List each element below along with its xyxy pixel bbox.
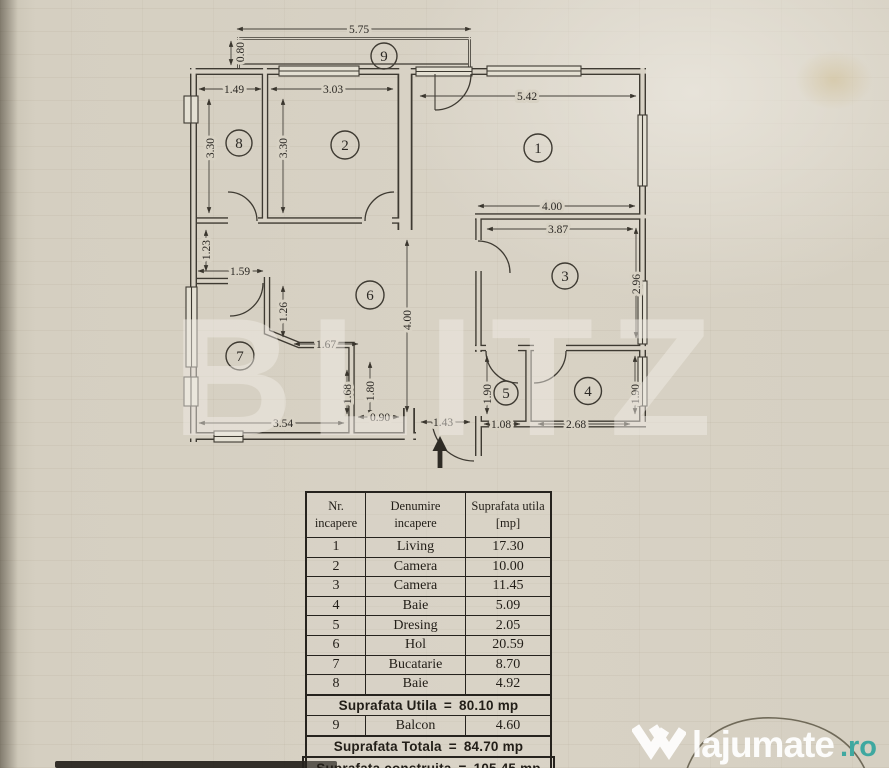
room-number: 6 [366, 288, 374, 304]
dim-label: 1.90 [482, 384, 494, 404]
cell-area: 11.45 [466, 577, 550, 596]
header-suprafata: Suprafata utila [mp] [466, 493, 550, 537]
walls-dark [190, 37, 646, 456]
dim-label: 3.03 [323, 84, 343, 96]
cell-name: Camera [366, 577, 466, 596]
cell-nr: 4 [307, 597, 366, 616]
scanned-floorplan-photo: 5.75 0.80 1.49 3.03 5.42 3.30 3.30 4.00 … [0, 0, 889, 768]
dim-label: 0.80 [235, 42, 247, 62]
cell-area: 5.09 [466, 597, 550, 616]
summary-value: 84.70 mp [464, 739, 523, 754]
dim-label: 3.30 [205, 138, 217, 158]
dim-label: 5.75 [349, 24, 369, 36]
summary-label: Suprafata Utila [339, 698, 437, 713]
table-row: 2 Camera 10.00 [307, 557, 550, 577]
equals-sign: = [449, 739, 457, 754]
cell-area: 2.05 [466, 616, 550, 635]
cell-name: Living [366, 538, 466, 557]
dim-label: 1.80 [365, 381, 377, 401]
summary-value: 105.45 mp [474, 761, 541, 768]
header-text: [mp] [496, 515, 520, 532]
room-number: 2 [341, 138, 349, 154]
room-number: 8 [235, 136, 243, 152]
cell-name: Hol [366, 636, 466, 655]
equals-sign: = [459, 761, 467, 768]
dim-label: 3.54 [273, 418, 293, 430]
room-number: 7 [236, 349, 244, 365]
cell-name: Camera [366, 558, 466, 577]
header-text: Denumire [391, 498, 441, 515]
walls-hollow [190, 37, 646, 456]
table-row-balcon: 9 Balcon 4.60 [307, 715, 550, 735]
lajumate-logo: lajumate .ro [632, 718, 877, 760]
summary-construita-row: Suprafata construita = 105.45 mp [302, 756, 555, 768]
cell-nr: 8 [307, 675, 366, 694]
header-text: Suprafata utila [471, 498, 544, 515]
cell-area: 17.30 [466, 538, 550, 557]
double-chevron-w-icon [632, 718, 686, 760]
dim-label: 1.08 [491, 419, 511, 431]
dim-label: 4.00 [402, 310, 414, 330]
summary-utila-row: Suprafata Utila = 80.10 mp [307, 694, 550, 716]
equals-sign: = [444, 698, 452, 713]
dim-label: 0.90 [370, 412, 390, 424]
room-number: 5 [502, 386, 510, 402]
logo-brand-text: lajumate [692, 729, 834, 760]
header-nr: Nr. incapere [307, 493, 366, 537]
cell-nr: 3 [307, 577, 366, 596]
cell-name: Balcon [366, 716, 466, 735]
cell-area: 4.60 [466, 716, 550, 735]
summary-label: Suprafata construita [316, 761, 451, 768]
table-row: 1 Living 17.30 [307, 537, 550, 557]
table-row: 5 Dresing 2.05 [307, 615, 550, 635]
cell-name: Baie [366, 675, 466, 694]
cell-name: Baie [366, 597, 466, 616]
cell-area: 10.00 [466, 558, 550, 577]
cell-nr: 1 [307, 538, 366, 557]
dim-label: 1.43 [433, 417, 453, 429]
cell-nr: 5 [307, 616, 366, 635]
summary-value: 80.10 mp [459, 698, 518, 713]
window-marks [184, 66, 647, 442]
dim-label: 3.87 [548, 224, 568, 236]
room-number: 3 [561, 269, 569, 285]
entrance-arrow [433, 436, 448, 468]
logo-tld-text: .ro [840, 734, 877, 760]
table-row: 4 Baie 5.09 [307, 596, 550, 616]
dim-label: 3.30 [278, 138, 290, 158]
cell-area: 8.70 [466, 656, 550, 675]
dim-label: 2.68 [566, 419, 586, 431]
header-denumire: Denumire incapere [366, 493, 466, 537]
door-arcs [228, 74, 566, 461]
room-area-table: Nr. incapere Denumire incapere Suprafata… [305, 491, 552, 768]
cell-nr: 2 [307, 558, 366, 577]
table-row: 6 Hol 20.59 [307, 635, 550, 655]
room-numbers: 1 2 3 4 5 6 7 8 9 [226, 43, 602, 405]
header-text: Nr. [328, 498, 344, 515]
dim-label: 1.59 [230, 266, 250, 278]
room-number: 1 [534, 141, 542, 157]
room-number: 9 [380, 49, 388, 65]
cell-nr: 7 [307, 656, 366, 675]
summary-totala-row: Suprafata Totala = 84.70 mp [307, 735, 550, 757]
table-row: 7 Bucatarie 8.70 [307, 655, 550, 675]
cell-area: 20.59 [466, 636, 550, 655]
dim-label: 1.90 [630, 384, 642, 404]
cell-name: Dresing [366, 616, 466, 635]
dim-label: 5.42 [517, 91, 537, 103]
dim-label: 1.26 [278, 302, 290, 322]
cell-nr: 6 [307, 636, 366, 655]
table-row: 3 Camera 11.45 [307, 576, 550, 596]
header-text: incapere [315, 515, 357, 532]
table-row: 8 Baie 4.92 [307, 674, 550, 694]
cell-name: Bucatarie [366, 656, 466, 675]
table-header-row: Nr. incapere Denumire incapere Suprafata… [307, 493, 550, 537]
dim-label: 2.96 [631, 274, 643, 294]
dim-label: 1.67 [316, 339, 336, 351]
cell-area: 4.92 [466, 675, 550, 694]
cell-nr: 9 [307, 716, 366, 735]
room-number: 4 [584, 384, 592, 400]
dim-label: 1.68 [342, 384, 354, 404]
header-text: incapere [394, 515, 436, 532]
dim-label: 4.00 [542, 201, 562, 213]
summary-label: Suprafata Totala [334, 739, 442, 754]
dim-label: 1.23 [201, 240, 213, 260]
dim-label: 1.49 [224, 84, 244, 96]
